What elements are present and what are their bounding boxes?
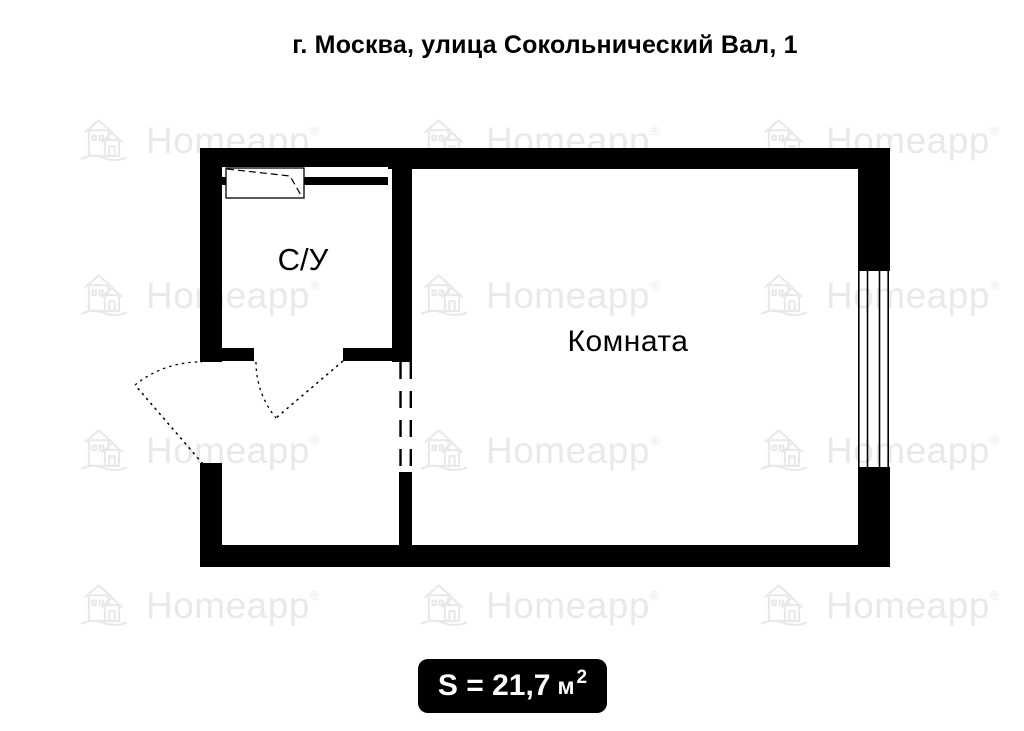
wall-top bbox=[200, 148, 890, 169]
floor-plan: С/У Комната bbox=[0, 0, 1024, 731]
window bbox=[859, 271, 888, 467]
wall-partition-bathroom bbox=[392, 148, 412, 362]
entrance-door-arc bbox=[135, 362, 202, 385]
area-value: S = 21,7 bbox=[438, 669, 551, 703]
address-title: г. Москва, улица Сокольнический Вал, 1 bbox=[66, 31, 1024, 60]
bathroom-door bbox=[256, 361, 343, 418]
area-badge: S = 21,7м2 bbox=[418, 659, 607, 713]
closet-box bbox=[226, 168, 304, 198]
wall-left-upper bbox=[200, 148, 222, 362]
walls bbox=[200, 148, 890, 567]
wall-right-upper bbox=[858, 148, 890, 271]
room-label-bathroom: С/У bbox=[278, 242, 329, 277]
bathroom-door-arc bbox=[256, 362, 276, 418]
dashed-opening bbox=[401, 362, 411, 468]
bathroom-door-leaf bbox=[276, 361, 343, 418]
entrance-door bbox=[135, 362, 203, 464]
wall-bathroom-bottom-left bbox=[200, 348, 254, 361]
wall-bathroom-bottom-right bbox=[343, 348, 412, 361]
closet-symbol bbox=[226, 168, 304, 198]
wall-hallway-thin bbox=[399, 472, 412, 545]
entrance-door-leaf bbox=[135, 385, 203, 464]
room-label-living: Комната bbox=[568, 325, 689, 358]
wall-right-lower bbox=[858, 467, 890, 567]
area-unit: м bbox=[558, 673, 575, 700]
wall-bottom bbox=[200, 545, 890, 567]
